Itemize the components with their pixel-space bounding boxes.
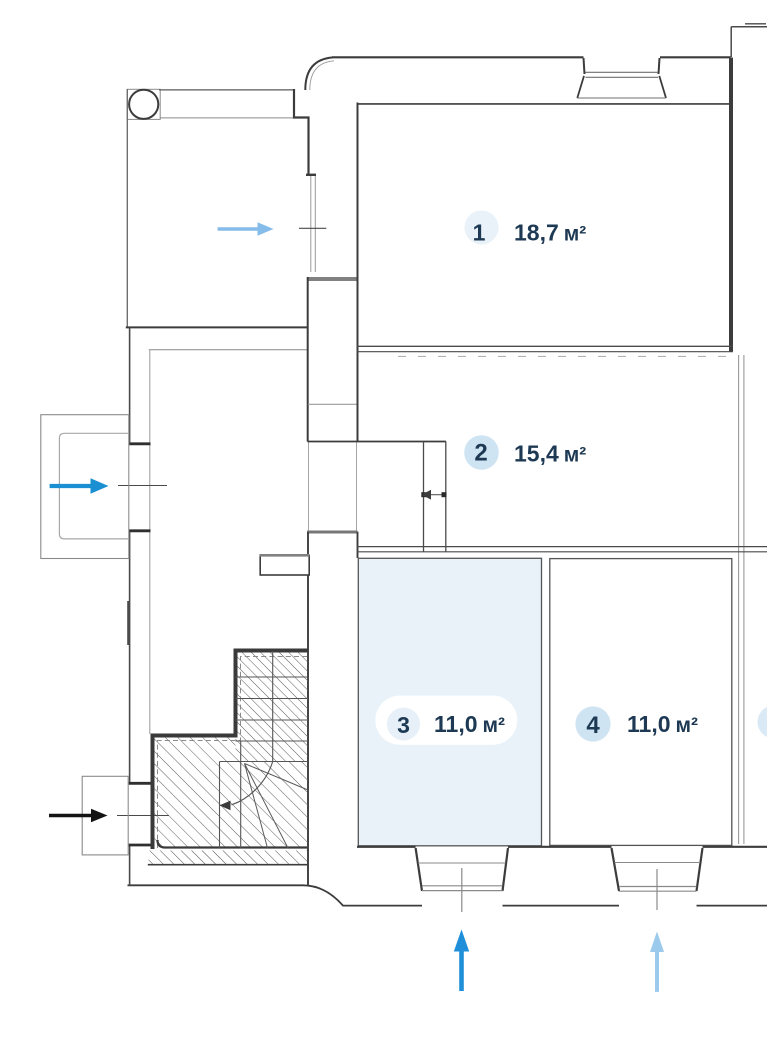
svg-text:3: 3 bbox=[397, 712, 410, 738]
svg-text:11,0м²: 11,0м² bbox=[627, 711, 698, 737]
svg-text:4: 4 bbox=[586, 712, 600, 739]
svg-text:15,4м²: 15,4м² bbox=[514, 441, 586, 467]
svg-text:1: 1 bbox=[473, 220, 486, 246]
svg-text:18,7м²: 18,7м² bbox=[514, 219, 586, 245]
svg-text:11,0м²: 11,0м² bbox=[434, 711, 505, 737]
svg-text:2: 2 bbox=[474, 440, 487, 467]
